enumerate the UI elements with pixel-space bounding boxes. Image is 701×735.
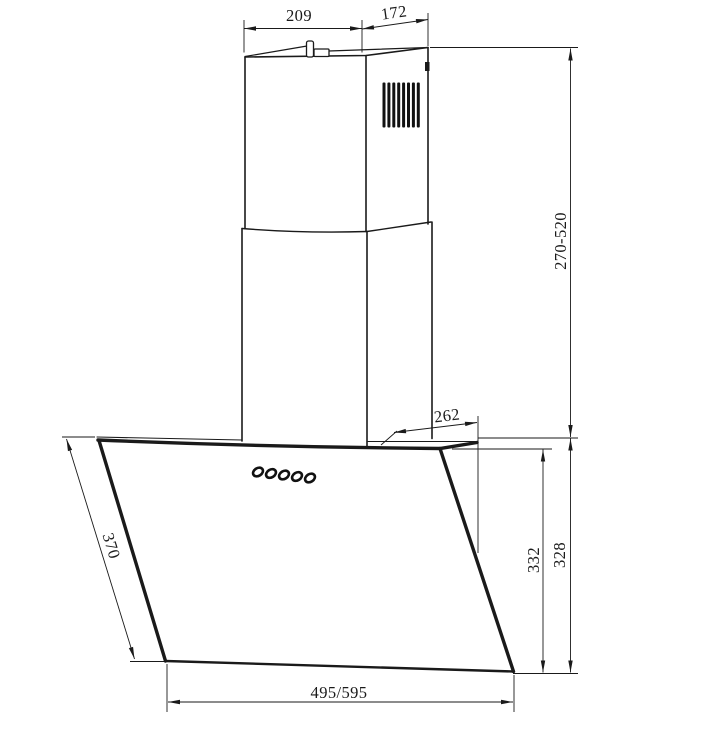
vent-slat: [417, 83, 420, 128]
dim-label-width-variants: 495/595: [311, 683, 368, 703]
chimney-seam: [242, 229, 367, 233]
dim-label-chimney-top-width: 209: [286, 6, 312, 26]
control-button: [303, 472, 316, 484]
dim-label-body-height: 328: [550, 542, 570, 568]
dim-label-front-glass-height: 332: [524, 547, 544, 573]
dim-label-chimney-top-depth: 172: [380, 1, 408, 24]
drawing-svg: [0, 0, 701, 735]
vent-slat: [412, 83, 415, 128]
vent-slat: [383, 83, 386, 128]
vent-slat: [397, 83, 400, 128]
control-button: [290, 470, 303, 482]
top-cap-clip: [307, 41, 330, 57]
vent-slat: [387, 83, 390, 128]
side-tab: [425, 62, 430, 71]
dim-label-hood-top-depth: 262: [433, 404, 461, 427]
control-button: [264, 467, 277, 479]
dimension-drawing-canvas: 209 172 270-520 262 332 328 370 495/595: [0, 0, 701, 735]
chimney-duct: [242, 41, 432, 446]
vent-slat: [402, 83, 405, 128]
glass-right-edge: [440, 449, 514, 672]
control-button: [251, 466, 264, 478]
hood-body: [97, 437, 514, 672]
glass-bottom-edge: [166, 661, 514, 672]
extension-lines: [62, 13, 578, 712]
vent-grille: [383, 83, 420, 128]
hood-control-buttons: [251, 466, 316, 484]
dim-label-chimney-height-range: 270-520: [551, 212, 571, 270]
vent-slat: [392, 83, 395, 128]
control-button: [277, 469, 290, 481]
dimension-lines: [67, 20, 571, 703]
vent-slat: [407, 83, 410, 128]
